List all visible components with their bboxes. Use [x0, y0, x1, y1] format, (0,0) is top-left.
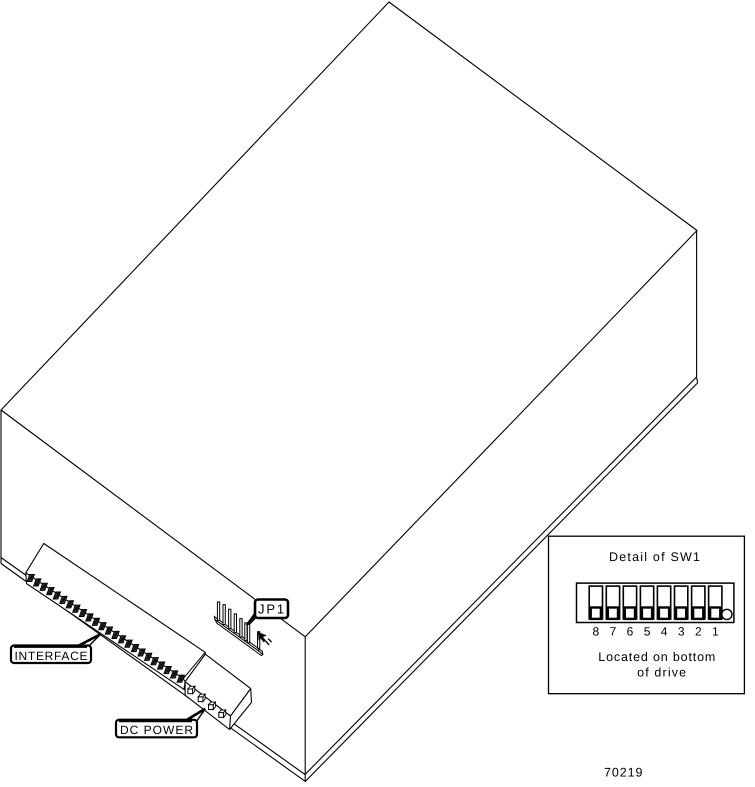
svg-text:1: 1 [712, 625, 719, 639]
svg-text:Detail of SW1: Detail of SW1 [609, 550, 700, 564]
svg-text:3: 3 [678, 625, 685, 639]
svg-text:6: 6 [627, 625, 634, 639]
svg-text:70219: 70219 [604, 765, 643, 779]
svg-text:of drive: of drive [637, 666, 686, 680]
svg-text:7: 7 [610, 625, 617, 639]
svg-text:INTERFACE: INTERFACE [15, 649, 88, 663]
svg-text:JP1: JP1 [258, 602, 286, 617]
svg-text:5: 5 [644, 625, 651, 639]
svg-text:Located on bottom: Located on bottom [598, 650, 715, 664]
svg-text:DC POWER: DC POWER [120, 723, 193, 737]
svg-text:2: 2 [695, 625, 702, 639]
svg-text:8: 8 [593, 625, 600, 639]
svg-text:4: 4 [661, 625, 668, 639]
